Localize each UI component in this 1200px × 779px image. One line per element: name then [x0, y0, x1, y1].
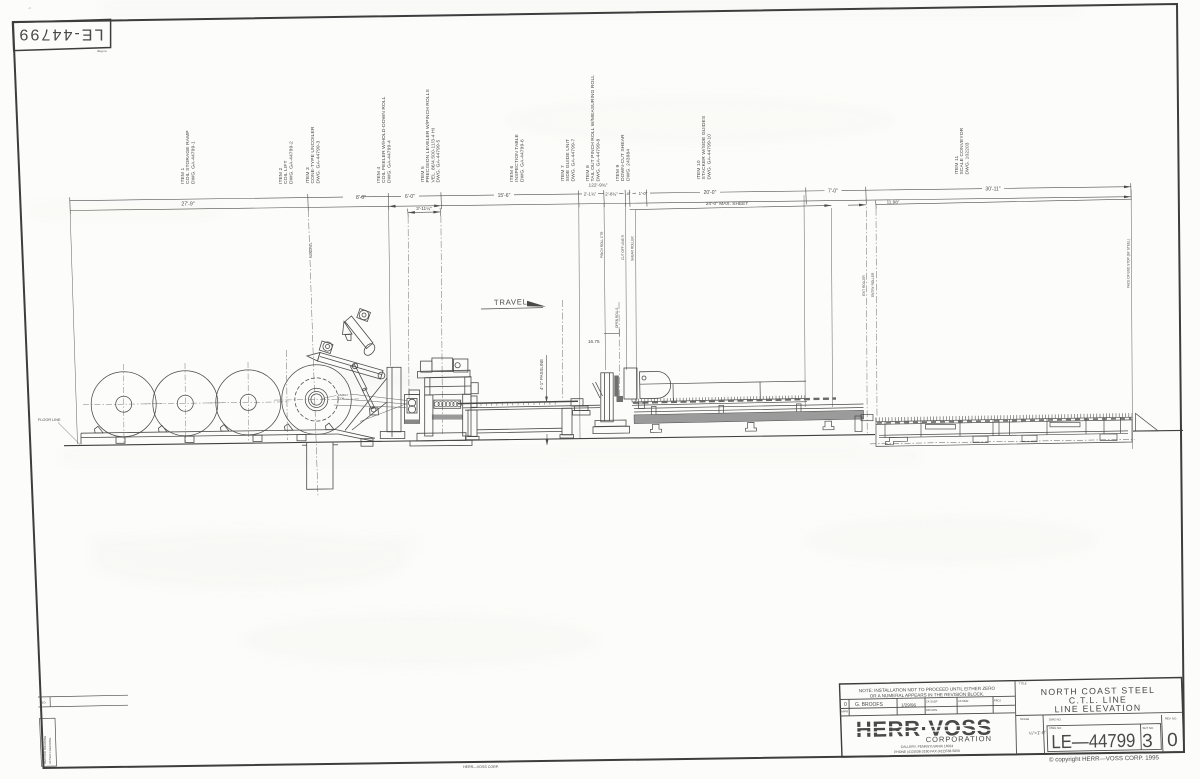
- svg-text:DWG. GA-44799-3: DWG. GA-44799-3: [315, 141, 321, 184]
- svg-text:APPR: APPR: [841, 710, 848, 714]
- svg-text:ITEM 4: ITEM 4: [376, 166, 382, 183]
- svg-text:FLOOR LINE: FLOOR LINE: [38, 418, 61, 422]
- svg-text:ITEM 9: ITEM 9: [615, 164, 621, 181]
- svg-text:30'-11": 30'-11": [985, 186, 1000, 192]
- svg-text:INSPECTION TABLE: INSPECTION TABLE: [514, 133, 520, 182]
- svg-text:-0": -0": [626, 191, 632, 196]
- svg-text:3'-11¼": 3'-11¼": [416, 206, 432, 212]
- svg-text:MANDREL: MANDREL: [309, 242, 313, 258]
- svg-text:G. BROOFS: G. BROOFS: [855, 702, 883, 708]
- svg-text:CONE-TYPE UNCOILER: CONE-TYPE UNCOILER: [310, 126, 316, 183]
- svg-text:CK MGR: CK MGR: [958, 699, 969, 703]
- svg-text:7'-0": 7'-0": [828, 189, 838, 195]
- svg-text:COIL: COIL: [338, 397, 345, 401]
- svg-text:STACKER W/SIDE GUIDES: STACKER W/SIDE GUIDES: [701, 115, 707, 179]
- svg-text:SHEAR ROLLER: SHEAR ROLLER: [631, 236, 635, 261]
- svg-text:CORPORATION: CORPORATION: [926, 734, 992, 744]
- svg-text:DWG. GA-44799-1: DWG. GA-44799-1: [190, 141, 196, 184]
- svg-text:LE—44799: LE—44799: [1051, 731, 1135, 754]
- svg-text:DWG. 102203: DWG. 102203: [964, 142, 970, 174]
- svg-text:DOWN-CUT SHEAR: DOWN-CUT SHEAR: [620, 134, 626, 181]
- svg-text:VEL. 86/4.500-11/3-4 HI: VEL. 86/4.500-11/3-4 HI: [430, 128, 436, 183]
- svg-text:DWG NO.: DWG NO.: [1049, 718, 1062, 722]
- svg-text:ITEM 11: ITEM 11: [954, 156, 960, 175]
- svg-text:0: 0: [1167, 730, 1178, 751]
- svg-text:ITEM 7: ITEM 7: [560, 165, 566, 182]
- svg-text:HERR—VOSS CORP.: HERR—VOSS CORP.: [463, 765, 499, 769]
- svg-text:LE-44799: LE-44799: [19, 26, 103, 43]
- svg-text:3: 3: [1142, 731, 1153, 752]
- svg-text:ITEM 2: ITEM 2: [278, 167, 284, 184]
- svg-text:.::: .::: [28, 5, 31, 10]
- svg-text:0: 0: [844, 702, 847, 708]
- svg-text:SIDE GUIDE UNIT: SIDE GUIDE UNIT: [565, 139, 571, 182]
- svg-text:2'-1¾": 2'-1¾": [584, 192, 597, 197]
- svg-text:1/29/96: 1/29/96: [901, 703, 917, 708]
- svg-text:1'-0": 1'-0": [639, 191, 648, 196]
- svg-text:DWG. 243984: DWG. 243984: [625, 149, 631, 181]
- svg-text:LINE ELEVATION: LINE ELEVATION: [1054, 703, 1141, 715]
- svg-text:COIL LIFT: COIL LIFT: [283, 160, 289, 184]
- svg-text:FACE OF END STOP (BY STEEL): FACE OF END STOP (BY STEEL): [1127, 239, 1131, 288]
- svg-text:ITEM 3: ITEM 3: [305, 167, 311, 184]
- svg-text:16.75: 16.75: [588, 339, 600, 344]
- svg-text:CUT OFF LINE R: CUT OFF LINE R: [621, 234, 625, 260]
- svg-text:SHT NO.: SHT NO.: [1143, 726, 1155, 730]
- svg-text:24'-0" MAX. SHEET: 24'-0" MAX. SHEET: [706, 201, 749, 207]
- svg-text:DWG. GA-44799-4: DWG. GA-44799-4: [386, 140, 392, 183]
- svg-text:ITEM 1: ITEM 1: [180, 167, 186, 184]
- svg-text:ITEM 5: ITEM 5: [420, 166, 426, 183]
- svg-text:11.98": 11.98": [887, 199, 900, 204]
- svg-text:8'-0": 8'-0": [356, 195, 366, 201]
- svg-text:DWG. GA-44799-2: DWG. GA-44799-2: [288, 141, 294, 184]
- svg-text:DR DATE: DR DATE: [926, 708, 937, 712]
- svg-text:6'-0": 6'-0": [405, 194, 415, 200]
- svg-text:TAIL OUT PINCH ROLL W/MEASURIN: TAIL OUT PINCH ROLL W/MEASURING ROLL: [590, 75, 596, 182]
- svg-text:ITEM 8: ITEM 8: [585, 165, 591, 182]
- svg-text:CK SUSP: CK SUSP: [926, 700, 938, 704]
- svg-text:DWG. GA-44799-6: DWG. GA-44799-6: [519, 139, 525, 182]
- svg-text:20'-0": 20'-0": [704, 190, 717, 196]
- svg-text:ITEM 6: ITEM 6: [509, 165, 515, 182]
- svg-text:DWG. GA-44799-10: DWG. GA-44799-10: [706, 134, 712, 180]
- svg-text:DWG. GA-44799-5: DWG. GA-44799-5: [436, 140, 442, 183]
- svg-text:RECORD DRAWING: RECORD DRAWING: [43, 735, 47, 764]
- svg-text:NO.: NO.: [41, 701, 47, 705]
- svg-text:ENTRY ROLLER: ENTRY ROLLER: [871, 272, 875, 297]
- svg-text:PRECISION LEVELER W/PINCH ROLL: PRECISION LEVELER W/PINCH ROLLS: [425, 89, 431, 183]
- svg-text:DWG NO.: DWG NO.: [1050, 726, 1063, 730]
- svg-text:COIL FEELER W/HOLD-DOWN ROLL: COIL FEELER W/HOLD-DOWN ROLL: [381, 96, 387, 183]
- svg-text:TRAVEL: TRAVEL: [494, 297, 528, 307]
- svg-text:EXIT ROLLER: EXIT ROLLER: [862, 275, 866, 296]
- svg-text:DWG. GA-44799-8: DWG. GA-44799-8: [595, 139, 601, 182]
- svg-text:2'-8¾": 2'-8¾": [605, 192, 618, 197]
- svg-text:4'-1" PASSLINE: 4'-1" PASSLINE: [539, 359, 544, 390]
- svg-text:COIL STORAGE RAMP: COIL STORAGE RAMP: [185, 130, 191, 184]
- svg-text:OPEN ROLLS: OPEN ROLLS: [615, 308, 619, 328]
- svg-text:REV. NO.: REV. NO.: [1165, 717, 1177, 721]
- svg-text:TITLE: TITLE: [1019, 682, 1027, 686]
- svg-text:AFTER CHECKING: AFTER CHECKING: [48, 737, 52, 764]
- svg-text:PINCH ROLL CTR: PINCH ROLL CTR: [600, 231, 604, 258]
- svg-text:122'-9¾": 122'-9¾": [589, 183, 608, 189]
- svg-text:dwg no: dwg no: [97, 49, 107, 53]
- svg-text:15'-6": 15'-6": [498, 193, 511, 199]
- svg-text:ITEM 10: ITEM 10: [696, 160, 702, 179]
- svg-text:PROJ: PROJ: [994, 699, 1002, 703]
- svg-text:SCALE: SCALE: [1020, 717, 1029, 721]
- svg-text:27'-9": 27'-9": [181, 202, 194, 208]
- svg-text:DWG. GA-44799-7: DWG. GA-44799-7: [570, 139, 576, 182]
- svg-text:SCALE CONVEYOR: SCALE CONVEYOR: [959, 127, 965, 174]
